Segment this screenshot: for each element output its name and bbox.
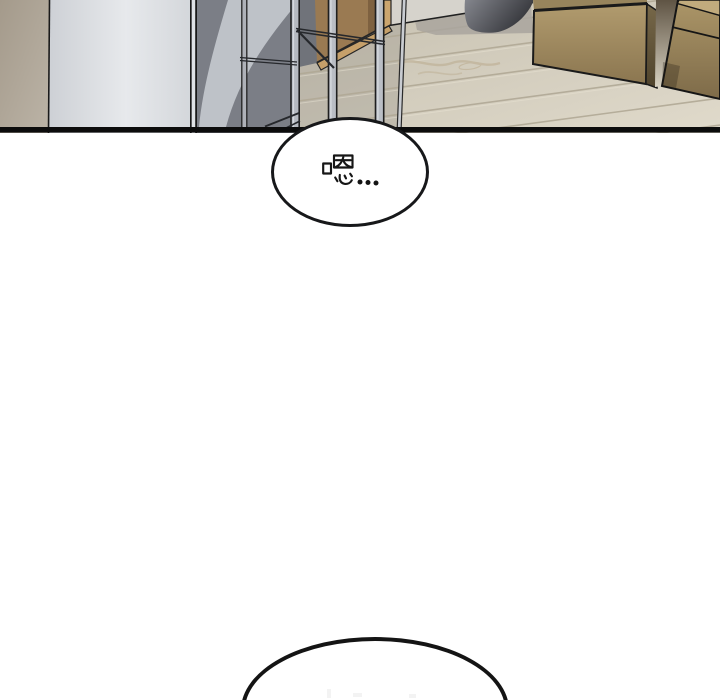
scene-artwork: [0, 0, 720, 135]
speech-bubble-2-text: [245, 641, 246, 642]
bubble-2-text-hint: [327, 689, 331, 698]
door-panel: [48, 0, 197, 133]
bubble-2-text-hint: [353, 693, 362, 697]
speech-bubble-1: 嗯...: [271, 117, 429, 227]
comic-page: 嗯...: [0, 0, 720, 700]
bubble-2-text-hint: [409, 694, 416, 698]
speech-bubble-2: [241, 637, 509, 700]
speech-bubble-1-glyph: [321, 153, 379, 189]
partition-wall: [196, 0, 300, 133]
left-wall: [0, 0, 51, 133]
ellipsis-dots: [358, 180, 379, 186]
